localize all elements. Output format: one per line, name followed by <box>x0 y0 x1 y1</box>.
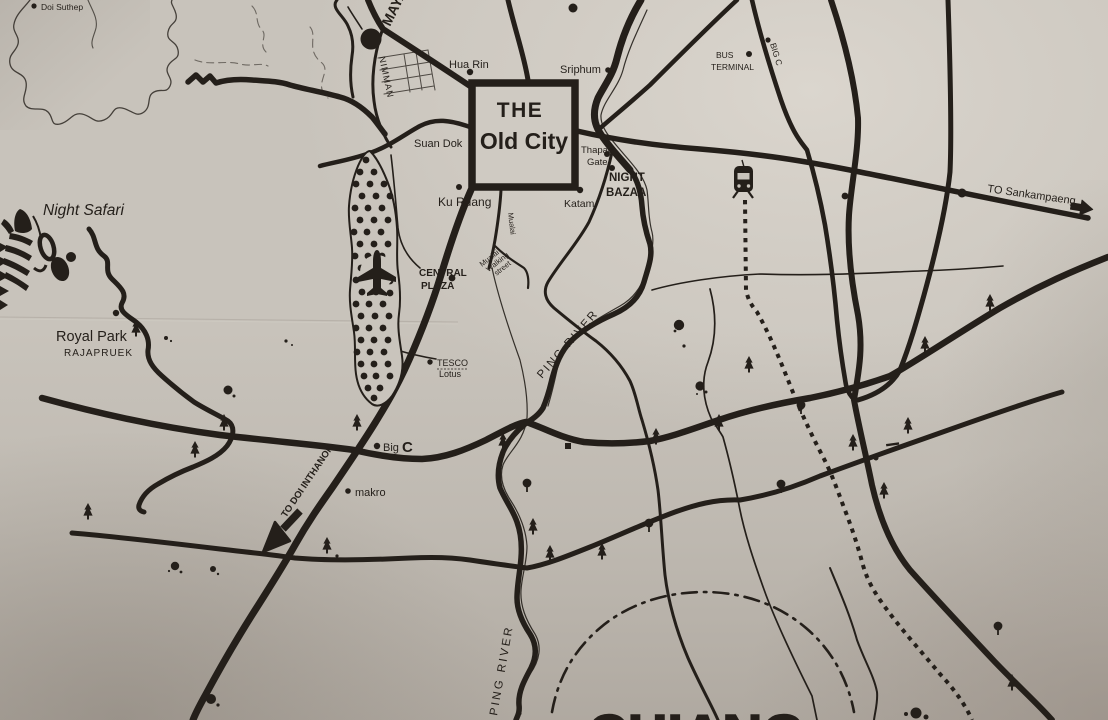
svg-text:THE: THE <box>497 99 544 122</box>
svg-text:Night Safari: Night Safari <box>43 202 125 219</box>
svg-text:makro: makro <box>355 487 386 499</box>
svg-text:TESCO: TESCO <box>437 358 468 368</box>
svg-text:Gate: Gate <box>587 157 608 168</box>
svg-text:Lotus: Lotus <box>439 369 462 379</box>
svg-text:Suan Dok: Suan Dok <box>414 138 463 150</box>
svg-text:Old City: Old City <box>480 128 568 154</box>
svg-text:TERMINAL: TERMINAL <box>711 62 754 72</box>
svg-text:Big: Big <box>383 442 399 454</box>
svg-text:BAZAA: BAZAA <box>606 187 646 199</box>
svg-text:Sriphum: Sriphum <box>560 64 601 76</box>
svg-text:Ku Ruang: Ku Ruang <box>438 195 491 209</box>
svg-text:PLAZA: PLAZA <box>421 281 454 292</box>
svg-text:Katam: Katam <box>564 198 595 210</box>
svg-text:Hua Rin: Hua Rin <box>449 59 489 71</box>
svg-text:C: C <box>402 439 413 456</box>
svg-text:Royal Park: Royal Park <box>56 329 128 345</box>
svg-text:CENTRAL: CENTRAL <box>419 268 467 279</box>
svg-text:NIGHT: NIGHT <box>609 172 645 184</box>
svg-text:Thapae: Thapae <box>581 145 613 156</box>
svg-text:BUS: BUS <box>716 50 734 60</box>
svg-text:CHIANG: CHIANG <box>588 703 805 720</box>
svg-text:RAJAPRUEK: RAJAPRUEK <box>64 348 133 359</box>
svg-text:Doi Suthep: Doi Suthep <box>41 2 83 12</box>
